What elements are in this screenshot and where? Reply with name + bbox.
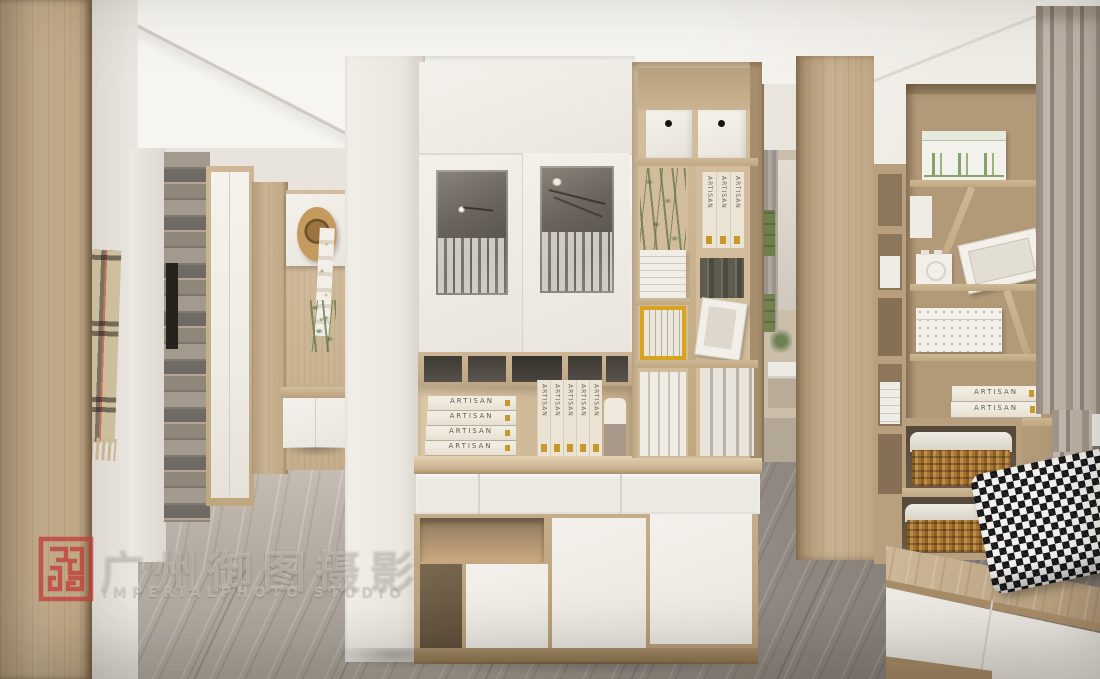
hanging-plant <box>640 168 686 262</box>
gold-mark <box>706 236 712 244</box>
storage-box <box>646 110 692 158</box>
entry-bench-drawers <box>283 398 349 448</box>
gold-mark <box>554 444 560 452</box>
small-dark-books <box>700 258 744 298</box>
drawer-seam <box>478 474 480 514</box>
cactus-print <box>924 153 1004 177</box>
artisan-spine-label: ARTISAN <box>580 384 587 417</box>
gold-mark <box>720 236 726 244</box>
artisan-book: ARTISAN <box>952 386 1040 402</box>
artisan-book: ARTISAN <box>427 411 516 426</box>
mirror-strip <box>762 84 798 462</box>
small-white-box-stack <box>880 382 900 424</box>
shelf-divider-diag <box>1003 290 1031 359</box>
shelf-divider-h <box>636 158 758 166</box>
artisan-spine-label: ARTISAN <box>706 176 713 209</box>
glass-right-cup-glint <box>552 178 562 186</box>
artisan-book: ARTISAN <box>425 441 516 456</box>
picture-frame <box>694 297 748 361</box>
artisan-book-label: ARTISAN <box>951 402 1041 415</box>
gold-mark <box>1029 390 1034 397</box>
watermark-en: IMPERIALPHOTO STUDIO <box>102 585 522 605</box>
artisan-spine-label: ARTISAN <box>541 384 548 417</box>
dark-cubby <box>606 356 628 382</box>
mirror-desk <box>768 362 796 408</box>
gold-mark <box>580 444 586 452</box>
gold-mark <box>567 444 573 452</box>
artisan-spine-label: ARTISAN <box>593 384 600 417</box>
lego-logo-arc <box>926 261 946 281</box>
small-white-box <box>910 196 932 238</box>
gold-mark <box>734 236 740 244</box>
artisan-spine: ARTISAN <box>716 172 730 248</box>
basket-liner <box>910 432 1012 452</box>
watermark-seal <box>38 536 94 602</box>
gold-mark <box>593 444 599 452</box>
artisan-book-label: ARTISAN <box>427 411 516 422</box>
artisan-spine: ARTISAN <box>576 380 589 456</box>
shelf-column-top-back <box>638 68 750 110</box>
gold-mark <box>541 444 547 452</box>
lego-bumps <box>921 250 947 255</box>
artisan-book-label: ARTISAN <box>425 441 516 452</box>
interior-photo: ARTISAN ARTISAN ARTISAN ARTISAN ARTISAN … <box>0 0 1100 679</box>
gold-mark <box>1030 406 1035 413</box>
dark-cubby <box>424 356 462 382</box>
mirror-ceiling <box>764 84 796 150</box>
artisan-spine: ARTISAN <box>730 172 744 248</box>
box-finger-hole <box>718 120 725 127</box>
drawer-seam <box>620 474 622 514</box>
gold-mark <box>505 445 510 451</box>
base-door <box>650 514 752 644</box>
frame-mat <box>704 306 737 350</box>
counter-top <box>414 456 762 474</box>
artisan-spine: ARTISAN <box>537 380 550 456</box>
gold-mark <box>505 430 510 436</box>
white-box-stack <box>640 250 686 298</box>
dark-cubby <box>512 356 562 382</box>
mirror-window-light <box>778 160 796 310</box>
glass-right-reflection-books <box>542 232 612 291</box>
shelf-line <box>910 180 1054 187</box>
shelf-line <box>910 284 1054 291</box>
drawer-row <box>416 474 760 514</box>
artisan-spine-label: ARTISAN <box>567 384 574 417</box>
artisan-book: ARTISAN <box>428 396 516 411</box>
mirror-green-books <box>764 210 775 256</box>
artisan-spine: ARTISAN <box>550 380 563 456</box>
wardrobe-door-seam <box>229 172 230 498</box>
artisan-spine-label: ARTISAN <box>720 176 727 209</box>
thin-cubby <box>878 174 902 226</box>
lego-container <box>916 254 952 284</box>
base-floor-shadow <box>410 662 766 676</box>
thin-cubby <box>878 298 902 356</box>
artisan-book-label: ARTISAN <box>952 386 1040 399</box>
tv-panel <box>166 263 178 349</box>
watermark-cn: 广州御图摄影 <box>100 536 660 586</box>
artisan-spine-label: ARTISAN <box>554 384 561 417</box>
wood-wardrobe-panel <box>796 56 874 560</box>
artisan-spine: ARTISAN <box>589 380 602 456</box>
dark-cubby <box>468 356 506 382</box>
frame-mat <box>968 237 1036 284</box>
mirror-plant <box>770 328 792 354</box>
yellow-cubby <box>640 306 686 360</box>
artisan-book-label: ARTISAN <box>428 396 516 407</box>
gold-mark <box>505 400 510 406</box>
artisan-spine-label: ARTISAN <box>734 176 741 209</box>
glass-left-reflection-books <box>438 238 506 293</box>
hallway-white-pillar <box>130 148 166 562</box>
box-finger-hole <box>665 120 672 127</box>
small-white-box <box>880 256 900 288</box>
artisan-spine: ARTISAN <box>702 172 716 248</box>
artisan-book-label: ARTISAN <box>426 426 516 437</box>
cactus-box <box>922 131 1006 180</box>
thin-cubby <box>878 364 902 426</box>
cactus-baseline <box>924 175 1004 177</box>
cactus-box-lid <box>922 131 1006 141</box>
white-book-row <box>640 372 686 456</box>
dotted-box-lid-line <box>916 319 1002 320</box>
entry-bench-top <box>281 387 351 398</box>
hallway-wardrobe-doors <box>211 172 249 498</box>
gold-mark <box>505 415 510 421</box>
cabinet-top-panel <box>418 62 633 155</box>
shelf-divider-v <box>688 166 696 456</box>
dark-cubby <box>568 356 602 382</box>
white-book-row <box>700 368 754 456</box>
mirror-floor <box>764 418 796 462</box>
shelf-divider-h <box>636 360 758 368</box>
thin-cubby <box>878 234 902 290</box>
thin-cubby <box>878 434 902 494</box>
ceramic-jar <box>604 398 626 456</box>
shelf-line <box>910 354 1054 361</box>
artisan-spine: ARTISAN <box>563 380 576 456</box>
artisan-book: ARTISAN <box>951 402 1041 418</box>
entry-bench-shadow <box>281 447 351 459</box>
window-curtain <box>1036 6 1100 414</box>
entry-bench-drawer-seam <box>315 398 316 448</box>
storage-box <box>698 110 746 158</box>
hanging-greenery <box>310 300 336 352</box>
shelf-divider-h <box>636 298 690 305</box>
artisan-book: ARTISAN <box>426 426 516 441</box>
mirror-green-books <box>764 294 775 332</box>
dotted-box <box>916 308 1002 352</box>
